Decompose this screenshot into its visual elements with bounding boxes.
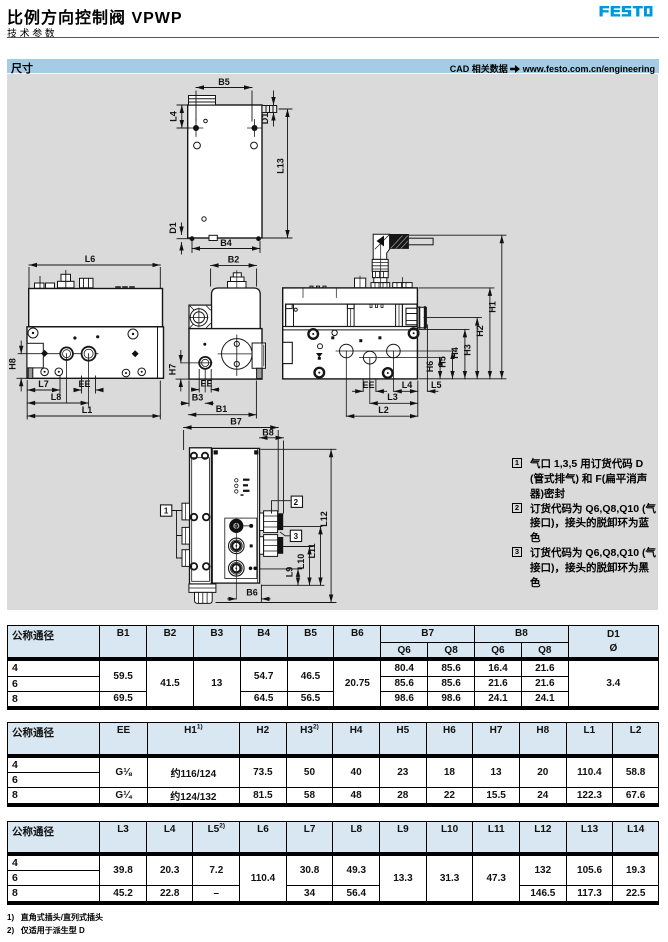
svg-text:L4: L4: [402, 380, 413, 390]
svg-text:B6: B6: [246, 588, 258, 598]
svg-text:L12: L12: [319, 511, 329, 527]
svg-text:B1: B1: [216, 404, 228, 414]
svg-text:H4: H4: [450, 347, 460, 359]
svg-text:3: 3: [294, 532, 299, 541]
svg-text:B7: B7: [230, 417, 242, 427]
svg-text:H8: H8: [8, 358, 18, 370]
svg-text:B4: B4: [220, 238, 232, 248]
svg-text:D1: D1: [168, 222, 178, 234]
svg-text:1: 1: [164, 507, 169, 516]
svg-text:L11: L11: [307, 543, 317, 558]
svg-text:B8: B8: [262, 428, 274, 438]
svg-text:B3: B3: [192, 393, 204, 403]
svg-text:L8: L8: [51, 392, 62, 402]
svg-text:H6: H6: [425, 361, 435, 373]
svg-text:L7: L7: [38, 379, 49, 389]
svg-text:L4: L4: [169, 111, 179, 122]
svg-text:H5: H5: [438, 356, 448, 368]
svg-text:D1: D1: [260, 113, 270, 125]
svg-text:H3: H3: [462, 344, 472, 356]
svg-text:L2: L2: [378, 405, 389, 415]
svg-text:H7: H7: [168, 364, 178, 376]
svg-text:L5: L5: [431, 380, 442, 390]
svg-text:L6: L6: [85, 254, 96, 264]
svg-text:H1: H1: [487, 301, 497, 313]
svg-text:L3: L3: [387, 392, 398, 402]
svg-text:L1: L1: [82, 405, 93, 415]
svg-text:L10: L10: [296, 554, 306, 570]
svg-text:B5: B5: [218, 77, 230, 87]
svg-text:L9: L9: [284, 567, 294, 578]
svg-text:EE: EE: [78, 379, 90, 389]
svg-text:B2: B2: [228, 255, 240, 265]
svg-text:2: 2: [294, 498, 299, 507]
svg-text:L13: L13: [276, 158, 286, 174]
svg-text:EE: EE: [362, 380, 374, 390]
svg-text:H2: H2: [475, 325, 485, 337]
svg-text:EE: EE: [200, 379, 212, 389]
